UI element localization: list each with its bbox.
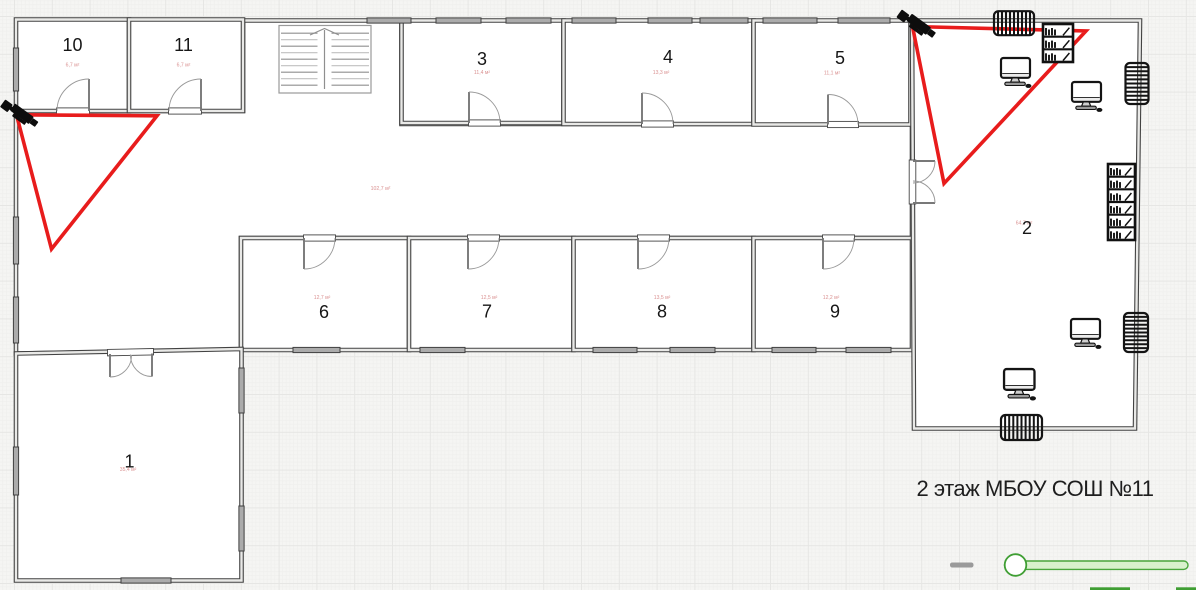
svg-text:12,7 м²: 12,7 м² [314,295,331,301]
svg-text:11: 11 [174,35,193,55]
svg-text:5: 5 [835,48,845,68]
svg-text:6,7 м²: 6,7 м² [177,62,191,68]
svg-text:102,7 м²: 102,7 м² [371,186,391,192]
svg-text:11,1 м²: 11,1 м² [824,70,840,76]
svg-text:2 этаж МБОУ СОШ №11: 2 этаж МБОУ СОШ №11 [917,476,1154,501]
svg-text:10: 10 [62,35,82,55]
svg-text:12,2 м²: 12,2 м² [823,295,840,301]
svg-text:7: 7 [482,302,492,322]
svg-text:35,4 м²: 35,4 м² [120,467,137,473]
svg-text:13,3 м²: 13,3 м² [653,70,670,76]
svg-text:8: 8 [657,302,667,322]
svg-text:11,4 м²: 11,4 м² [474,70,490,76]
svg-text:2: 2 [1022,218,1032,238]
svg-text:13,5 м²: 13,5 м² [654,295,671,301]
svg-text:12,5 м²: 12,5 м² [481,295,498,301]
svg-text:6,7 м²: 6,7 м² [66,62,80,68]
svg-text:3: 3 [477,49,487,69]
svg-text:4: 4 [663,47,673,67]
svg-text:9: 9 [830,302,840,322]
svg-text:6: 6 [319,302,329,322]
